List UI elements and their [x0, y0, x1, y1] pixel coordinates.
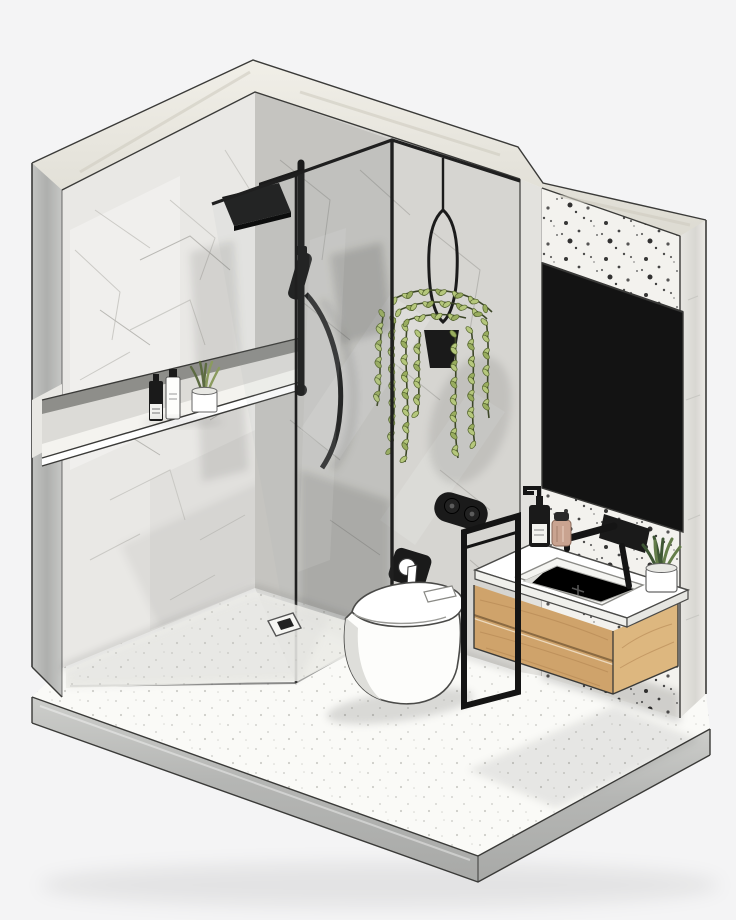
shampoo-bottle-white — [166, 369, 180, 419]
ground-shadow — [40, 863, 720, 907]
cosmetic-jar — [552, 512, 571, 546]
scene-canvas — [0, 0, 736, 920]
shampoo-bottle-black — [149, 374, 163, 421]
right-wall-cut-edge — [680, 220, 706, 718]
bathroom-isometric-illustration — [0, 0, 736, 920]
